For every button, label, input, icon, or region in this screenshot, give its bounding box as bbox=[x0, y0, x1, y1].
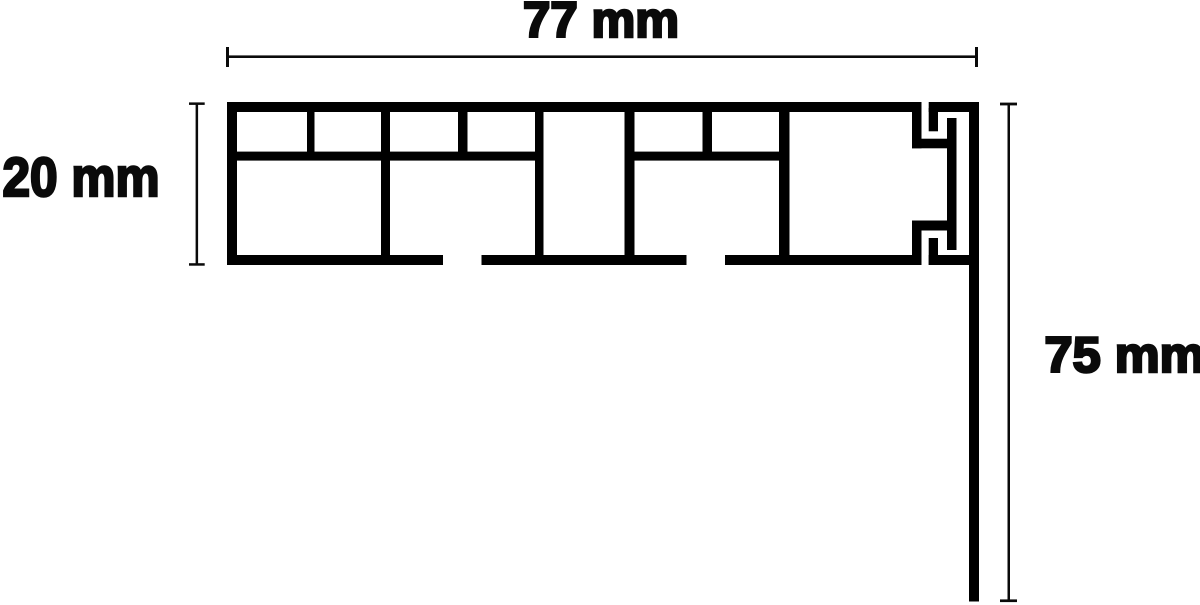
svg-text:75 mm: 75 mm bbox=[1045, 327, 1200, 383]
svg-text:20 mm: 20 mm bbox=[3, 146, 160, 208]
svg-text:77 mm: 77 mm bbox=[523, 0, 679, 48]
